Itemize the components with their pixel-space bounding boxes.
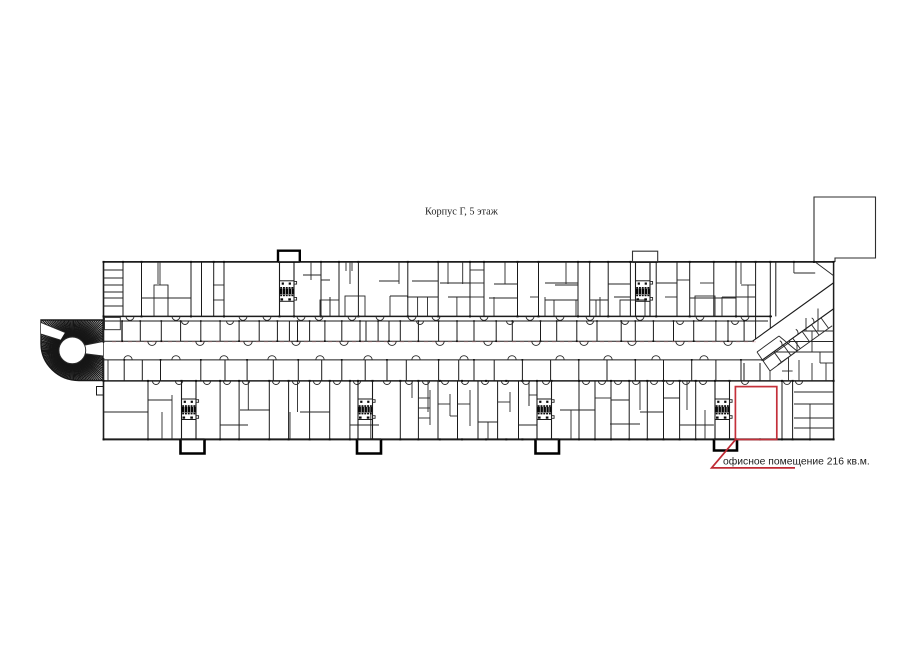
svg-text:офисное помещение 216 кв.м.: офисное помещение 216 кв.м. bbox=[723, 456, 870, 468]
svg-text:Корпус Г, 5 этаж: Корпус Г, 5 этаж bbox=[425, 207, 499, 218]
